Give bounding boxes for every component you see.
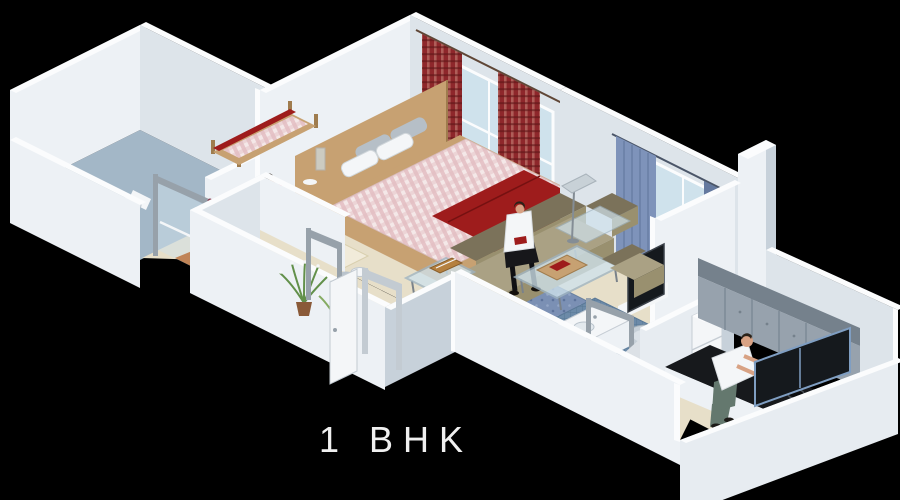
- faucet: [593, 315, 597, 319]
- door-knob: [333, 328, 337, 332]
- floorplan-image: 1 BHK: [0, 0, 900, 500]
- saucer: [303, 179, 317, 185]
- vase: [316, 148, 325, 170]
- door-frame-post: [153, 174, 158, 256]
- open-door-panel: [330, 269, 357, 384]
- caption: 1 BHK: [319, 419, 473, 460]
- man-shirt: [504, 211, 534, 252]
- floorplan-svg: 1 BHK: [0, 0, 900, 500]
- man-head: [516, 205, 525, 214]
